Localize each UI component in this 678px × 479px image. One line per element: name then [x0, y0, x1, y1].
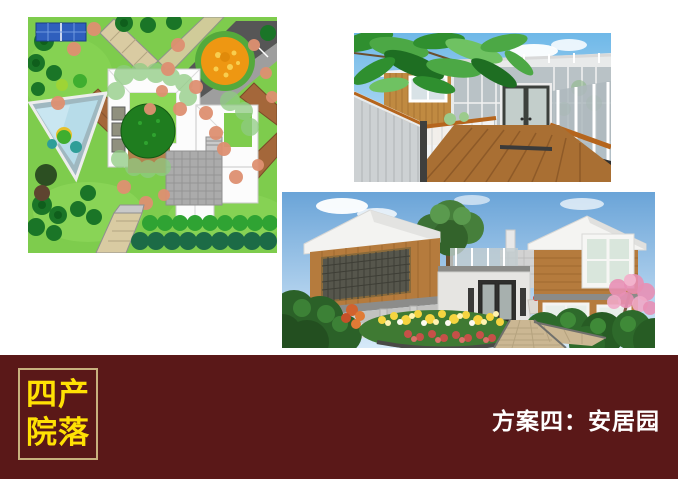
garden-plan-image [28, 17, 277, 253]
garden-plan-graphic [28, 17, 277, 253]
series-badge: 四产 院落 [18, 368, 98, 460]
round-sand-feature [195, 31, 255, 91]
presentation-slide: 四产 院落 方案四：安居园 [0, 0, 678, 479]
scheme-caption: 方案四：安居园 [492, 402, 660, 436]
building-exterior-render-image [282, 192, 655, 348]
badge-line1: 四产 [26, 376, 90, 414]
solar-panels [36, 23, 86, 41]
badge-line2: 院落 [26, 414, 90, 452]
roof-deck-render-image [354, 33, 611, 182]
building-exterior-graphic [282, 192, 655, 348]
roof-deck-graphic [354, 33, 611, 182]
footer-band: 四产 院落 方案四：安居园 [0, 355, 678, 479]
